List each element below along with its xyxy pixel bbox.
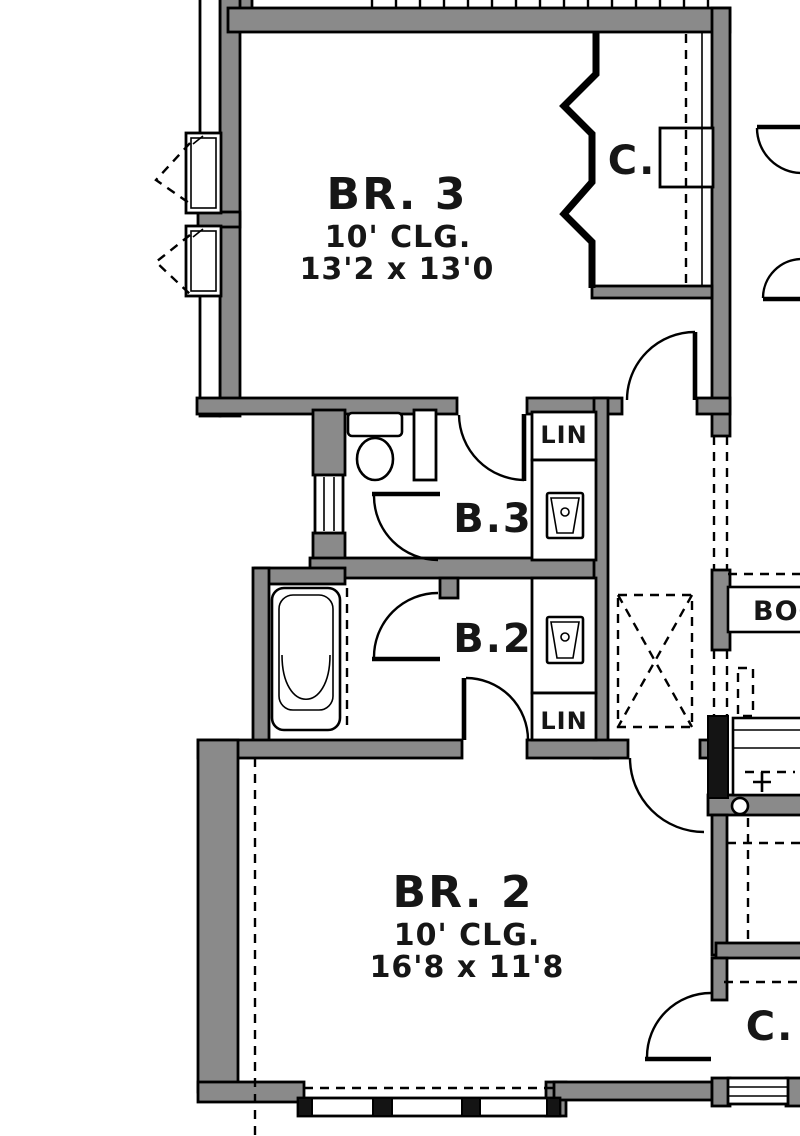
floor-plan: BR. 3 10' CLG. 13'2 x 13'0 BR. 2 10' CLG… (0, 0, 800, 1136)
dimensions-label-br3: 13'2 x 13'0 (300, 252, 495, 287)
sink-b2 (547, 617, 583, 663)
toilet (348, 413, 402, 480)
attic-access (618, 595, 692, 727)
ceiling-label-br2: 10' CLG. (394, 918, 541, 953)
cabinet-fixture (733, 718, 800, 795)
bookshelf-label: BOOK (753, 596, 800, 627)
closet-label-br2: C. (746, 1004, 795, 1050)
wc-partition (414, 410, 436, 480)
door-b3-entry (459, 414, 524, 481)
bifold-doors (564, 32, 596, 288)
bathtub (272, 588, 340, 730)
door-right-edge-upper (757, 127, 800, 173)
door-br3-entry (627, 332, 695, 400)
closet-label-br3: C. (608, 138, 657, 184)
linen-label-b3: LIN (540, 421, 587, 449)
wall-pier (708, 716, 728, 798)
room-label-b2: B.2 (453, 616, 533, 662)
door-wc (372, 494, 440, 560)
door-closet-br2 (645, 993, 711, 1059)
column (732, 798, 748, 814)
door-b2-inner (372, 593, 440, 659)
room-label-b3: B.3 (453, 496, 533, 542)
room-label-br3: BR. 3 (327, 169, 468, 220)
sink-b3 (547, 493, 583, 538)
door-b2-to-br2 (464, 678, 528, 740)
linen-label-b2: LIN (540, 707, 587, 735)
dimensions-label-br2: 16'8 x 11'8 (370, 950, 565, 985)
floor-plan-drawing: BR. 3 10' CLG. 13'2 x 13'0 BR. 2 10' CLG… (0, 0, 800, 1136)
door-right-edge-lower (763, 259, 800, 299)
door-br2-entry (630, 758, 704, 832)
bay-window (298, 1098, 560, 1116)
ceiling-label-br3: 10' CLG. (325, 220, 472, 255)
window-closet (728, 1078, 788, 1104)
window-bath (315, 475, 343, 533)
room-label-br2: BR. 2 (393, 867, 534, 918)
